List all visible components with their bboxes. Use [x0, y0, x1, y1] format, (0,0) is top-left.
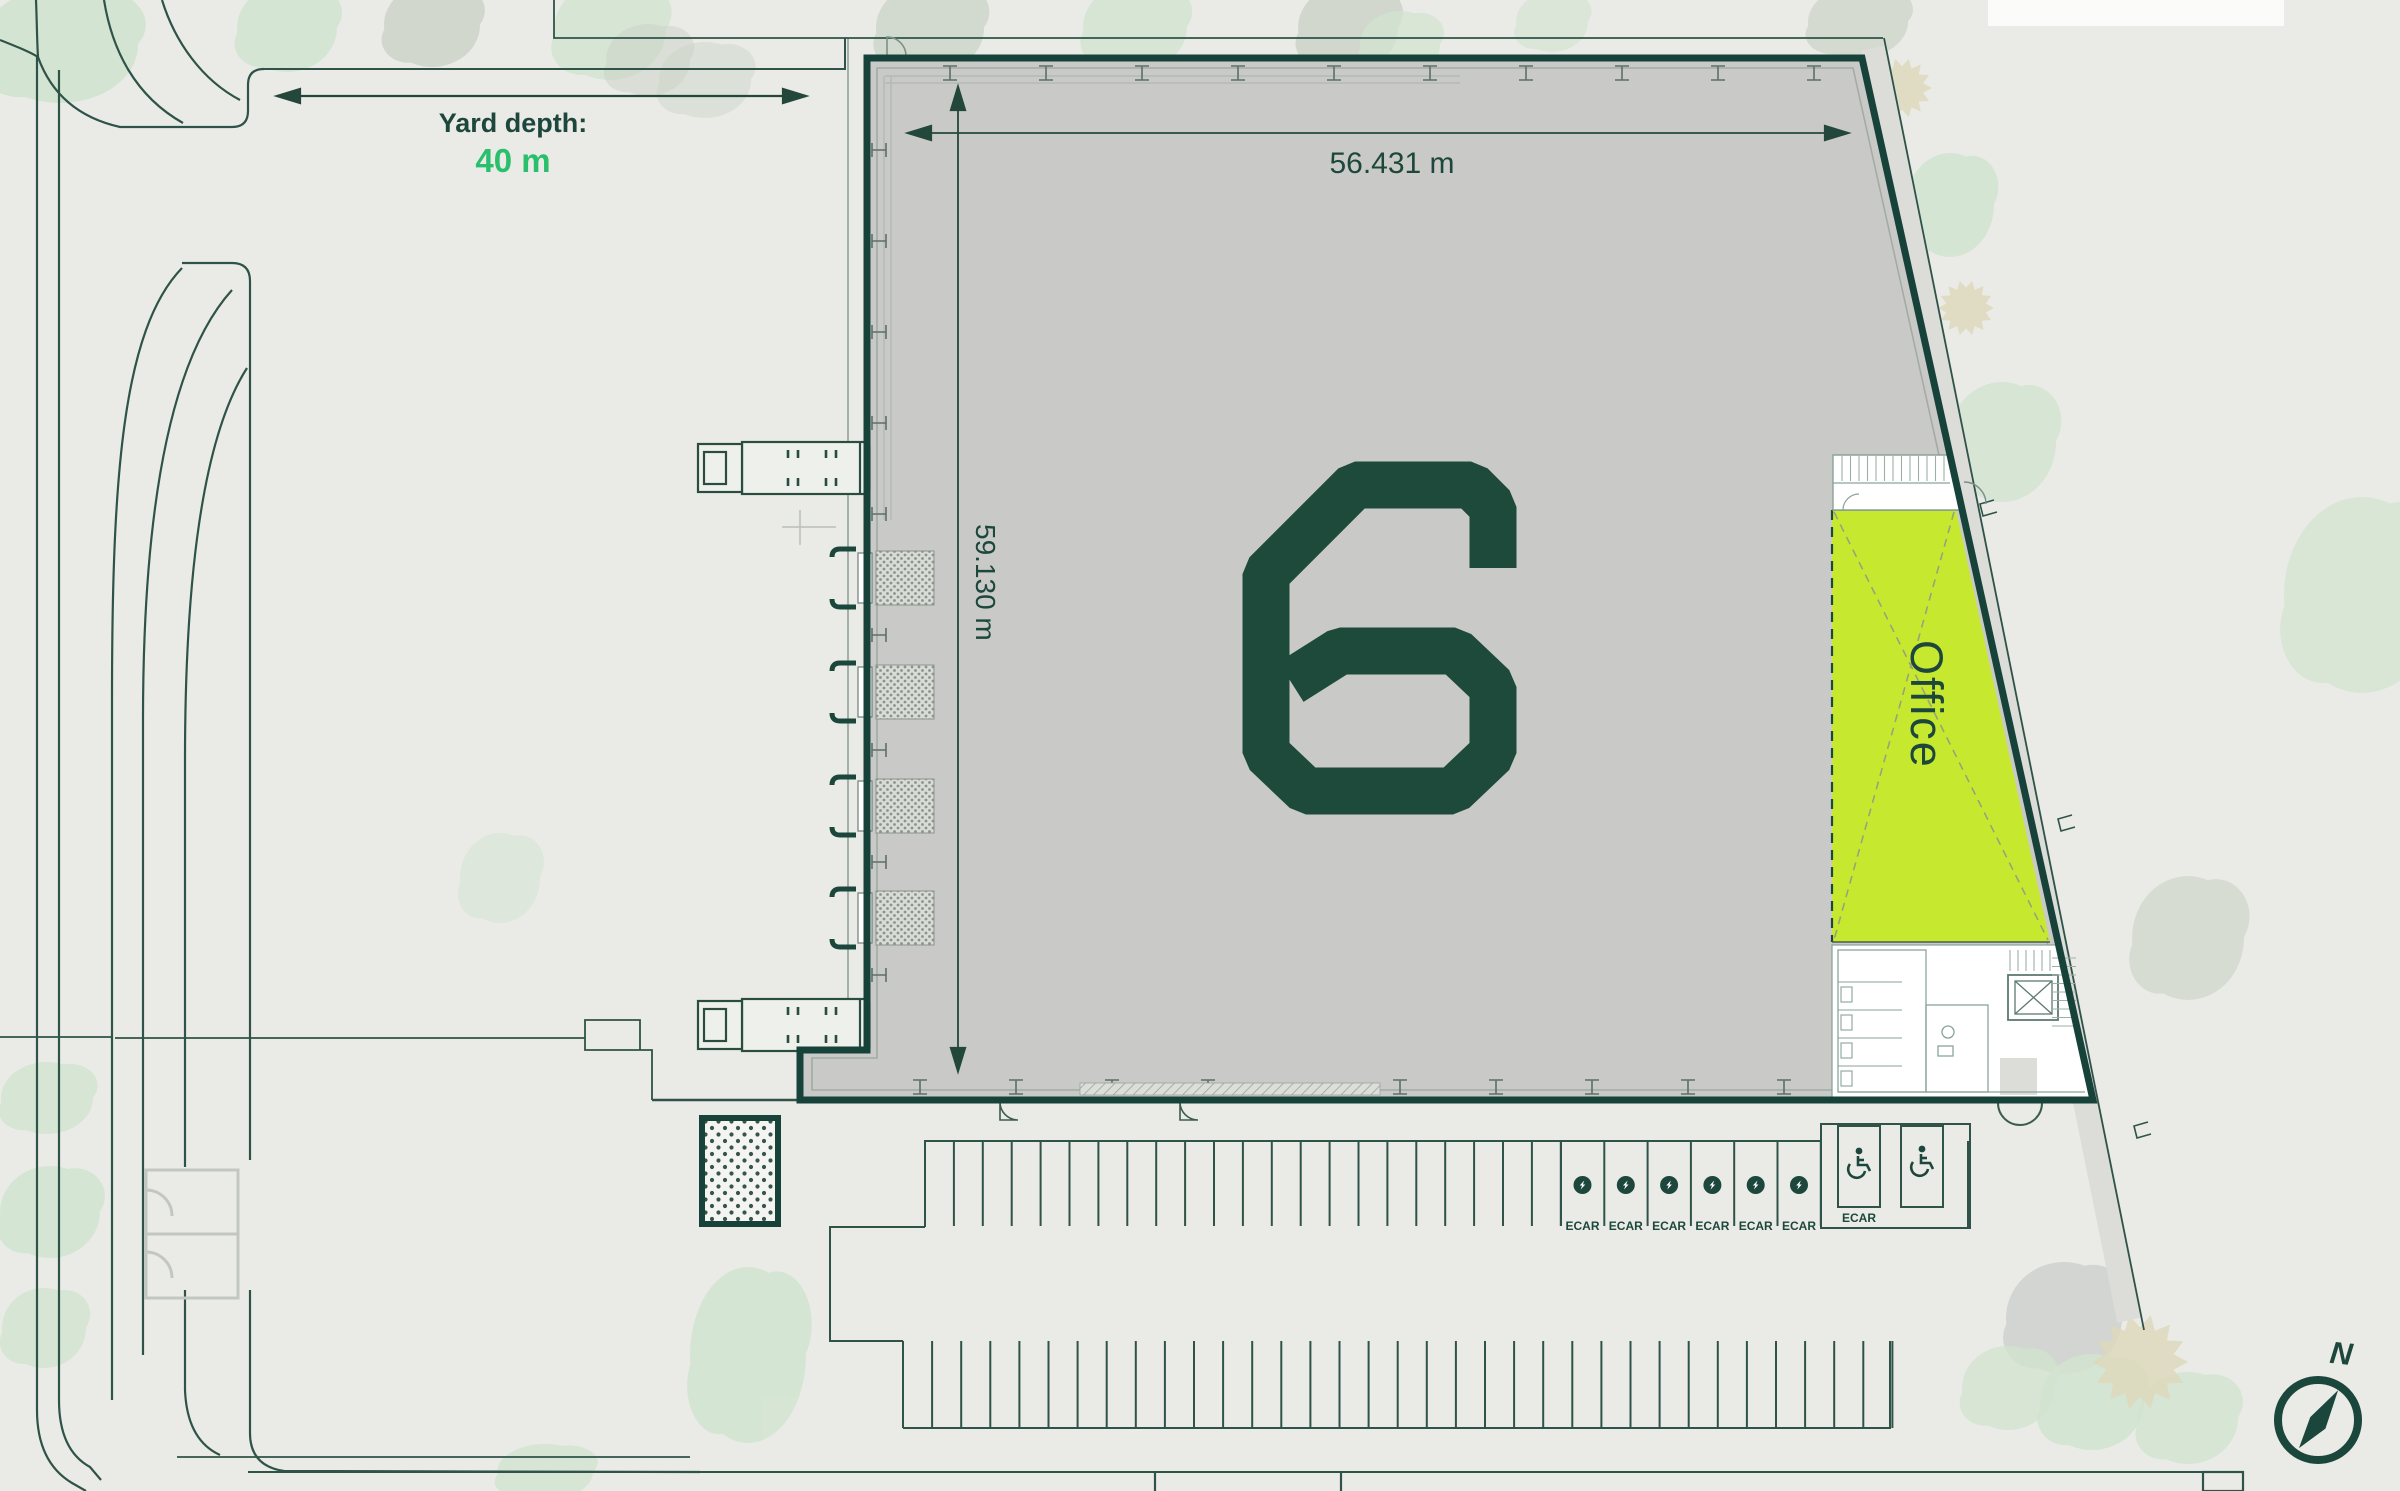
ecar-label: ECAR	[1695, 1219, 1729, 1233]
tree-icon	[687, 1267, 812, 1443]
road-left-resume1	[250, 1290, 700, 1472]
boundary-jog-2	[2058, 815, 2075, 831]
entrance-doors	[1998, 1103, 2042, 1125]
road-entry-c3	[185, 368, 247, 1167]
yard-depth-value: 40 m	[383, 142, 643, 180]
truck-icon	[698, 999, 870, 1051]
road-left-outer	[37, 57, 86, 1491]
ecar-stall: ECAR	[1609, 1176, 1643, 1233]
wheelchair-icon	[1848, 1148, 1870, 1178]
tree-icon	[2129, 876, 2249, 1000]
tree-icon	[235, 0, 343, 72]
top-boundary-line	[554, 0, 1883, 38]
survey-cross	[782, 510, 836, 545]
site-plan: ECARECARECARECARECARECAR ECAR Yard depth…	[0, 0, 2400, 1491]
door-bottom-1	[1000, 1102, 1018, 1120]
top-right-strip	[1988, 0, 2284, 26]
entrance-mat	[2000, 1058, 2037, 1095]
truck-icon	[698, 442, 870, 494]
ecar-stall: ECAR	[1652, 1176, 1686, 1233]
yard-depth-label: Yard depth:	[383, 108, 643, 139]
ecar-stall: ECAR	[1739, 1176, 1773, 1233]
shrub-icon	[1938, 281, 1994, 336]
tree-icon	[1806, 0, 1914, 58]
wall-hatch-strip	[1080, 1083, 1380, 1095]
sprinkler-pad	[702, 1118, 778, 1224]
tree-icon	[0, 1288, 90, 1368]
ecar-stall: ECAR	[1695, 1176, 1729, 1233]
ecar-label: ECAR	[1609, 1219, 1643, 1233]
accessible-stall-1	[1838, 1126, 1880, 1207]
ecar-label: ECAR	[1652, 1219, 1686, 1233]
road-entry-h	[182, 263, 250, 1160]
tree-icon	[458, 833, 544, 923]
tree-icon	[495, 1444, 598, 1491]
road-inner-2	[162, 0, 240, 100]
site-plan-drawing: ECARECARECARECARECARECAR ECAR	[0, 0, 2400, 1491]
wheelchair-icon	[1911, 1146, 1933, 1176]
tree-icon	[382, 0, 485, 67]
building-width-label: 56.431 m	[1292, 147, 1492, 181]
trucks	[698, 442, 870, 1051]
ecar-label: ECAR	[1782, 1219, 1816, 1233]
road-notch	[2203, 1472, 2243, 1491]
ecar-stall: ECAR	[1782, 1176, 1816, 1233]
wheelchair-icons	[1848, 1146, 1933, 1178]
boundary-jog-3	[2134, 1122, 2151, 1138]
road-left-outer2	[59, 70, 101, 1480]
compass-icon	[2278, 1380, 2358, 1460]
boundary-jog-1	[1980, 500, 1997, 516]
ecar-stall: ECAR	[1565, 1176, 1599, 1233]
north-label: N	[2328, 1335, 2354, 1373]
gate-structure	[146, 1170, 238, 1298]
yard-fence-bottom	[115, 1020, 652, 1100]
tree-icon	[0, 1166, 105, 1258]
accessible-ecar-label: ECAR	[1842, 1211, 1876, 1225]
road-left-resume2	[185, 1290, 220, 1455]
building-height-label: 59.130 m	[969, 524, 1001, 641]
ecar-label: ECAR	[1565, 1219, 1599, 1233]
office-label: Office	[1900, 640, 1952, 769]
tree-icon	[2280, 497, 2400, 693]
parking-lot: ECARECARECARECARECARECAR ECAR	[830, 1124, 1970, 1428]
accessible-stall-2	[1901, 1126, 1943, 1207]
tree-icon	[0, 0, 146, 103]
door-bottom-2	[1180, 1102, 1198, 1120]
road-entry-c2	[143, 290, 232, 1355]
tree-icon	[1514, 0, 1591, 52]
ecar-label: ECAR	[1739, 1219, 1773, 1233]
tree-icon	[0, 1062, 98, 1134]
